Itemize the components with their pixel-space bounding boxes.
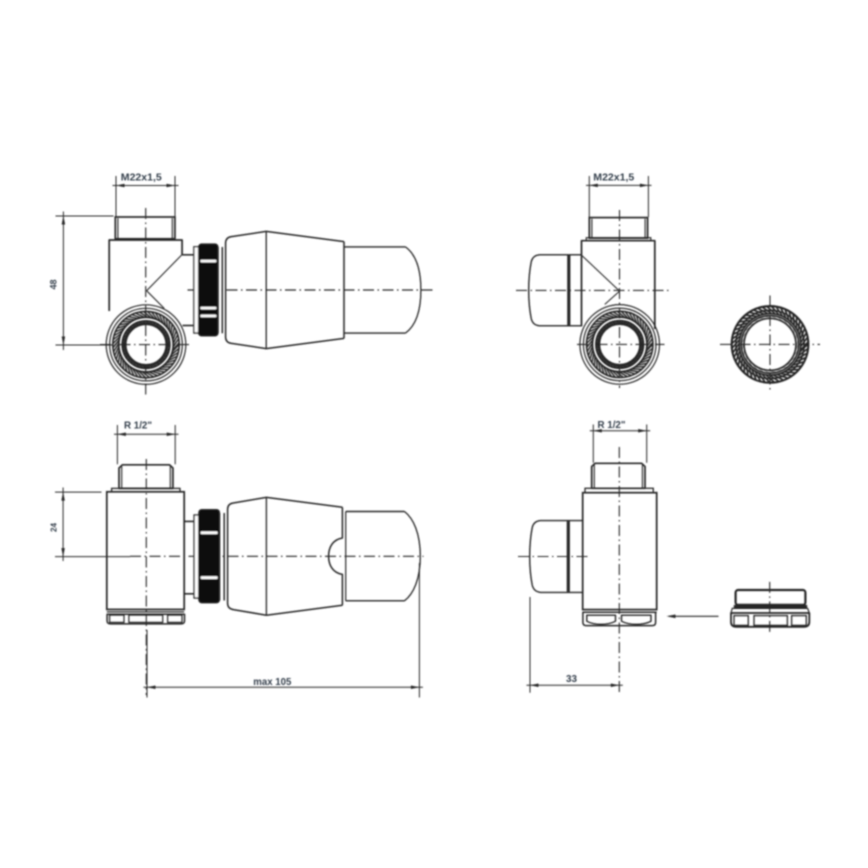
svg-text:max 105: max 105 <box>253 677 291 688</box>
svg-text:M22x1,5: M22x1,5 <box>593 172 634 183</box>
svg-text:24: 24 <box>49 522 58 532</box>
svg-text:R 1/2": R 1/2" <box>124 420 152 431</box>
svg-text:33: 33 <box>566 674 577 685</box>
svg-text:48: 48 <box>48 279 59 290</box>
svg-text:M22x1,5: M22x1,5 <box>121 172 162 183</box>
